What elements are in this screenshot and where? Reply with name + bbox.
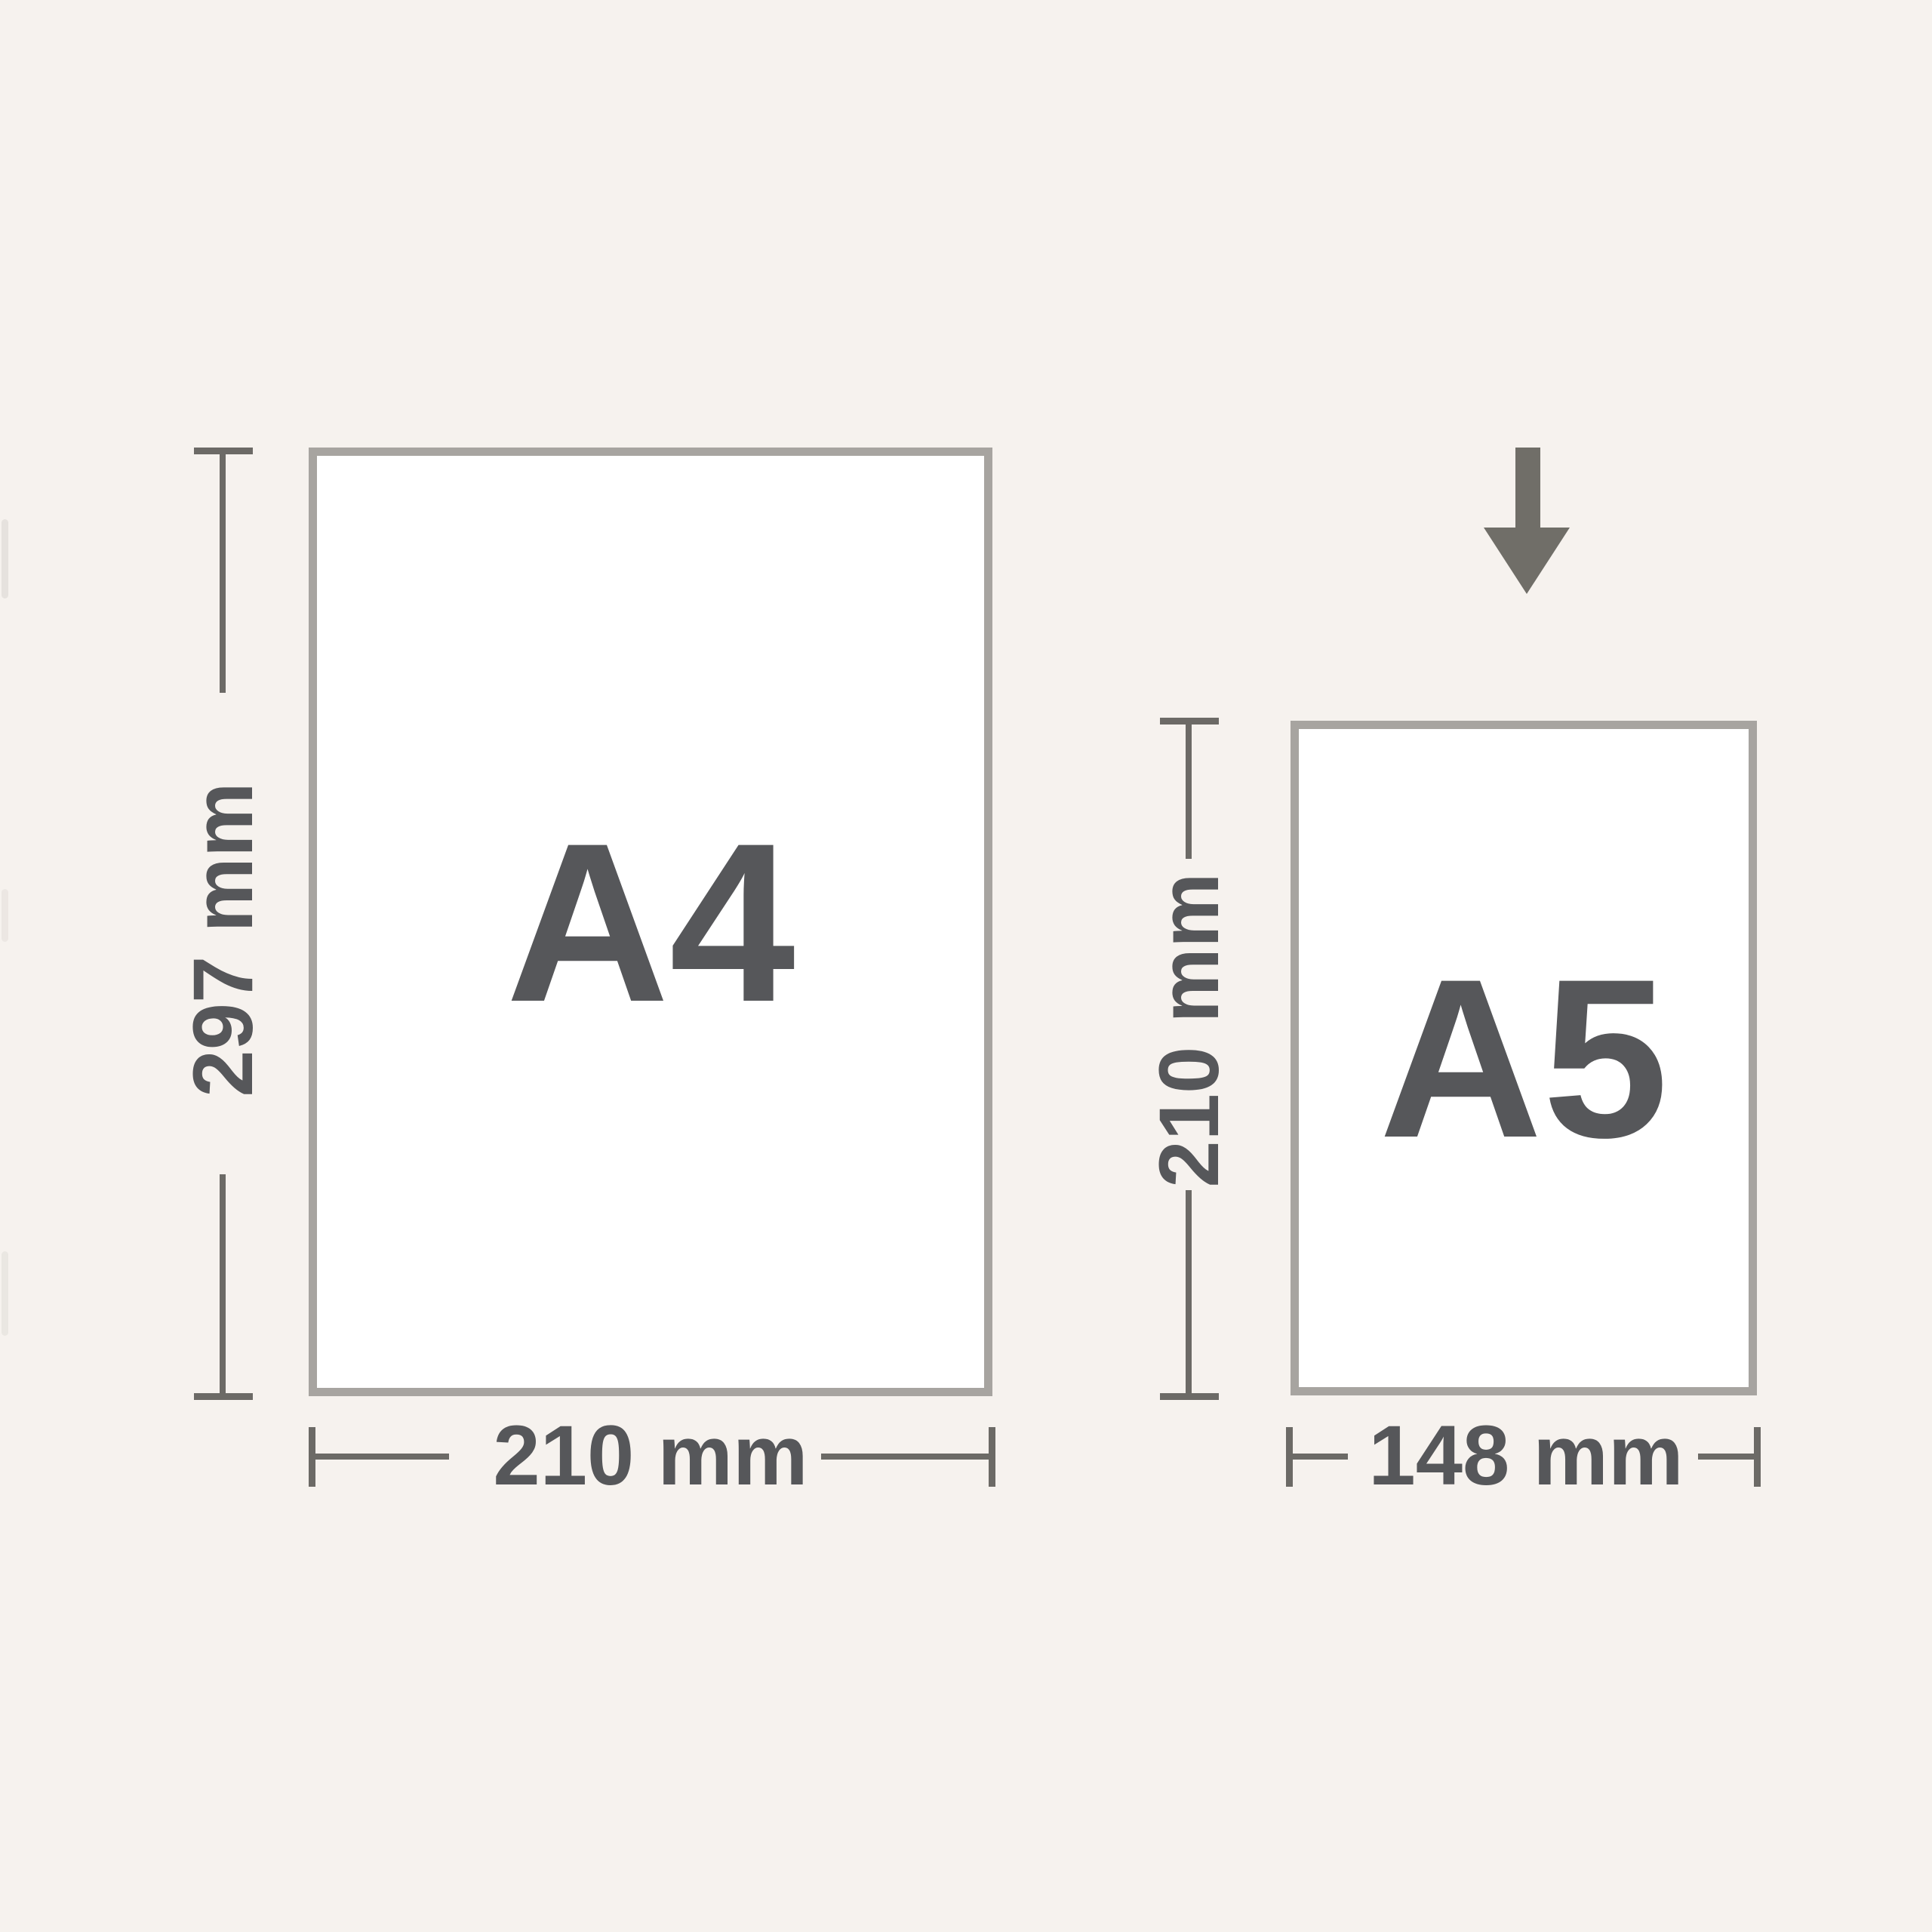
a5-height-label: 210 mm [1147,872,1232,1187]
left-edge-artifact [2,519,8,598]
a5-height-dimension-line [1186,721,1192,859]
down-arrow-shaft [1515,448,1540,529]
a5-width-dimension-line [1290,1454,1348,1460]
down-arrow-head [1484,528,1570,594]
a4-height-dimension-line [220,451,226,693]
a5-paper-label: A5 [1379,945,1669,1171]
a4-width-dimension-right-tick [989,1427,995,1487]
a4-width-dimension-line [821,1454,992,1460]
a5-width-label: 148 mm [1368,1414,1683,1498]
paper-size-comparison-diagram: { "diagram": { "description": "Paper siz… [0,0,1932,1932]
a5-width-dimension-line [1698,1454,1757,1460]
a5-paper-sheet: A5 [1291,721,1757,1395]
a4-width-label: 210 mm [493,1414,808,1498]
a4-width-dimension-line [312,1454,449,1460]
a5-width-dimension-right-tick [1754,1427,1761,1487]
a4-paper-label: A4 [506,809,795,1035]
left-edge-artifact [2,889,8,942]
a4-height-label: 297 mm [181,782,266,1097]
a4-height-dimension-bottom-tick [194,1393,253,1400]
a5-height-dimension-bottom-tick [1160,1393,1219,1400]
a4-height-dimension-line [220,1174,226,1396]
left-edge-artifact [2,1251,8,1336]
a4-paper-sheet: A4 [309,448,992,1396]
a5-height-dimension-line [1186,1190,1192,1395]
